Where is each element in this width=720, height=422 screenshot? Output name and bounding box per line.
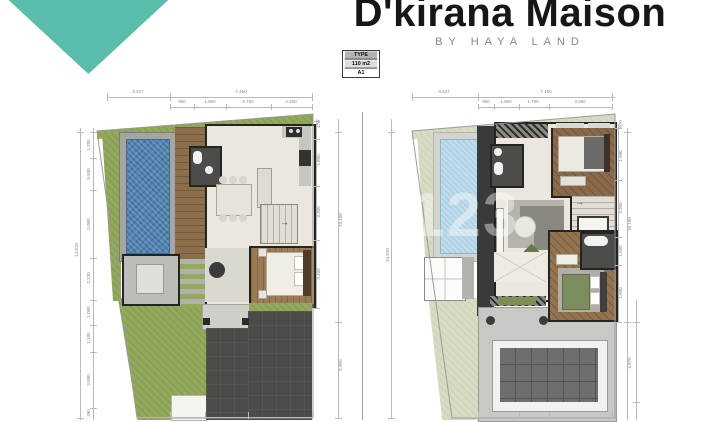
dim-line xyxy=(170,107,312,108)
dim-line xyxy=(362,112,363,420)
dim-tick xyxy=(312,412,313,419)
dim-tick xyxy=(313,139,320,140)
dim-label: 3.250 xyxy=(574,100,585,105)
dim-label: 1.500 xyxy=(204,100,215,105)
bathtub xyxy=(584,236,608,246)
dim-tick xyxy=(90,190,97,191)
stock-watermark: 123 xyxy=(410,180,519,251)
nightstand xyxy=(258,248,267,257)
dresser xyxy=(556,254,578,265)
dim-tick xyxy=(624,132,631,133)
dim-label: 1.750 xyxy=(527,100,538,105)
dim-tick xyxy=(615,237,622,238)
dim-tick xyxy=(170,93,171,101)
dim-line xyxy=(80,128,81,420)
pillow xyxy=(590,292,600,305)
master-bed-duvet xyxy=(562,274,590,310)
page-title: D'kirana Maison xyxy=(350,0,670,34)
dim-tick xyxy=(549,104,550,110)
dim-tick xyxy=(107,93,108,101)
dim-label: 950 xyxy=(482,100,490,105)
dim-tick xyxy=(313,186,320,187)
dim-tick xyxy=(412,93,413,101)
dim-line xyxy=(93,128,94,420)
dim-tick xyxy=(77,418,84,419)
dim-tick xyxy=(335,322,342,323)
dim-line xyxy=(107,97,312,98)
dim-tick xyxy=(90,258,97,259)
dim-tick xyxy=(205,412,206,419)
dim-label: 1.100 xyxy=(87,332,92,343)
backyard-lawn-faded xyxy=(423,298,478,420)
dim-label: 3.400 xyxy=(317,268,322,279)
sink xyxy=(205,166,213,174)
dim-tick xyxy=(633,322,640,323)
dim-line xyxy=(338,119,339,419)
dim-label: 1.700 xyxy=(87,139,92,150)
dim-tick xyxy=(615,265,622,266)
pillow xyxy=(590,276,600,289)
stove-burner xyxy=(289,129,293,133)
dim-label: 2.220 xyxy=(87,272,92,283)
nightstand xyxy=(258,290,267,299)
dim-label: 10.100 xyxy=(339,213,344,227)
driveway xyxy=(206,328,249,420)
dim-line xyxy=(478,107,612,108)
dining-chair xyxy=(219,214,227,222)
dining-chair xyxy=(219,176,227,184)
dim-label: 14.810 xyxy=(75,243,80,257)
dim-label: 1.600 xyxy=(619,150,624,161)
stair-direction-arrow: → xyxy=(280,218,289,227)
dim-tick xyxy=(248,412,249,419)
dining-chair xyxy=(229,176,237,184)
dim-tick xyxy=(388,418,395,419)
dim-tick xyxy=(170,412,171,419)
dim-label: 10.100 xyxy=(628,217,633,231)
upper-hall xyxy=(494,252,546,282)
dining-table xyxy=(216,184,252,216)
dim-tick xyxy=(313,308,320,309)
pavilion-roof-edge xyxy=(462,257,474,299)
dim-label: 3.300 xyxy=(619,202,624,213)
dim-tick xyxy=(624,322,631,323)
type-badge-label: TYPE xyxy=(345,51,377,59)
foyer-chair xyxy=(209,262,225,278)
dining-chair xyxy=(229,214,237,222)
planting-strip xyxy=(249,303,312,311)
toilet-upper xyxy=(494,162,503,175)
dim-tick xyxy=(612,412,613,419)
dim-tick xyxy=(271,104,272,110)
brand-header: D'kirana Maison BY HAYA LAND xyxy=(350,0,670,48)
pergola-shade xyxy=(496,124,548,138)
dim-tick xyxy=(170,104,171,110)
porch-column xyxy=(242,318,249,325)
porch-column xyxy=(203,318,210,325)
dining-chair xyxy=(239,214,247,222)
dim-line xyxy=(627,128,628,420)
balcony-hedge xyxy=(498,297,536,305)
type-badge-area: 110 m2 xyxy=(345,60,377,68)
dim-label: 390 xyxy=(87,409,92,417)
dim-tick xyxy=(478,104,479,110)
headboard xyxy=(303,250,311,296)
dim-label: 950 xyxy=(178,100,186,105)
planter-pot xyxy=(486,316,495,325)
dim-tick xyxy=(478,93,479,101)
brand-triangle-mark xyxy=(0,0,170,74)
dim-tick xyxy=(615,180,622,181)
stove-burner xyxy=(296,129,300,133)
dim-label: 1.500 xyxy=(500,100,511,105)
dim-tick xyxy=(519,412,520,419)
dim-tick xyxy=(633,402,640,403)
dim-tick xyxy=(615,128,622,129)
stair-direction-arrow: → xyxy=(575,198,584,207)
type-badge-unit: A1 xyxy=(345,69,377,76)
dim-label: 3.417 xyxy=(132,90,143,95)
lawn-side-strip xyxy=(101,133,121,301)
sink-upper xyxy=(494,148,502,156)
dim-line xyxy=(452,417,613,418)
staircase xyxy=(260,204,298,244)
dim-tick xyxy=(194,104,195,110)
dim-tick xyxy=(90,352,97,353)
dim-line xyxy=(412,97,615,98)
dim-label: 4.870 xyxy=(628,357,633,368)
master-headboard xyxy=(600,272,607,312)
dim-tick xyxy=(388,132,395,133)
dim-tick xyxy=(90,158,97,159)
dim-tick xyxy=(494,104,495,110)
planter-pot xyxy=(539,316,548,325)
dim-tick xyxy=(226,104,227,110)
dim-line xyxy=(391,119,392,419)
type-badge: TYPE 110 m2 A1 xyxy=(342,50,380,78)
toilet xyxy=(193,151,202,164)
dim-tick xyxy=(90,132,97,133)
dim-tick xyxy=(519,104,520,110)
fridge xyxy=(299,150,311,166)
dim-tick xyxy=(335,132,342,133)
dim-label: 3.800 xyxy=(87,374,92,385)
bed-bench xyxy=(560,176,586,186)
kitchen-island xyxy=(257,168,272,208)
dim-label: 670 xyxy=(619,120,624,128)
dim-label: 3.437 xyxy=(438,90,449,95)
swimming-pool xyxy=(126,139,170,254)
dim-label: 1.600 xyxy=(619,287,624,298)
pavilion-roof xyxy=(424,257,466,301)
dim-label: 470 xyxy=(317,120,322,128)
dim-label: 5.850 xyxy=(339,359,344,370)
dim-tick xyxy=(77,132,84,133)
skylight-panels xyxy=(500,348,598,402)
dim-label: 2.250 xyxy=(285,100,296,105)
dim-tick xyxy=(312,93,313,101)
dining-chair xyxy=(239,176,247,184)
dim-tick xyxy=(90,300,97,301)
entry-porch xyxy=(202,304,250,330)
dim-tick xyxy=(612,93,613,101)
dim-label: 1.500 xyxy=(619,245,624,256)
driveway xyxy=(248,311,312,420)
dim-tick xyxy=(312,104,313,110)
page-subtitle: BY HAYA LAND xyxy=(350,36,670,48)
dim-label: 1.000 xyxy=(87,306,92,317)
dim-label: 2.750 xyxy=(242,100,253,105)
dim-label: 1.600 xyxy=(317,154,322,165)
dim-tick xyxy=(335,418,342,419)
dim-tick xyxy=(313,240,320,241)
headboard-2 xyxy=(604,134,610,172)
dim-label: 7.450 xyxy=(235,90,246,95)
dim-tick xyxy=(549,412,550,419)
dim-label: 14.810 xyxy=(386,248,391,262)
dim-label: 3.000 xyxy=(87,218,92,229)
dim-tick xyxy=(90,325,97,326)
dim-label: 5.500 xyxy=(87,168,92,179)
dim-line xyxy=(137,417,313,418)
dim-tick xyxy=(615,322,622,323)
dim-tick xyxy=(478,412,479,419)
pavilion-bench xyxy=(136,264,164,294)
dim-tick xyxy=(612,104,613,110)
dim-label: 7.450 xyxy=(540,90,551,95)
dim-label: 3.300 xyxy=(317,206,322,217)
